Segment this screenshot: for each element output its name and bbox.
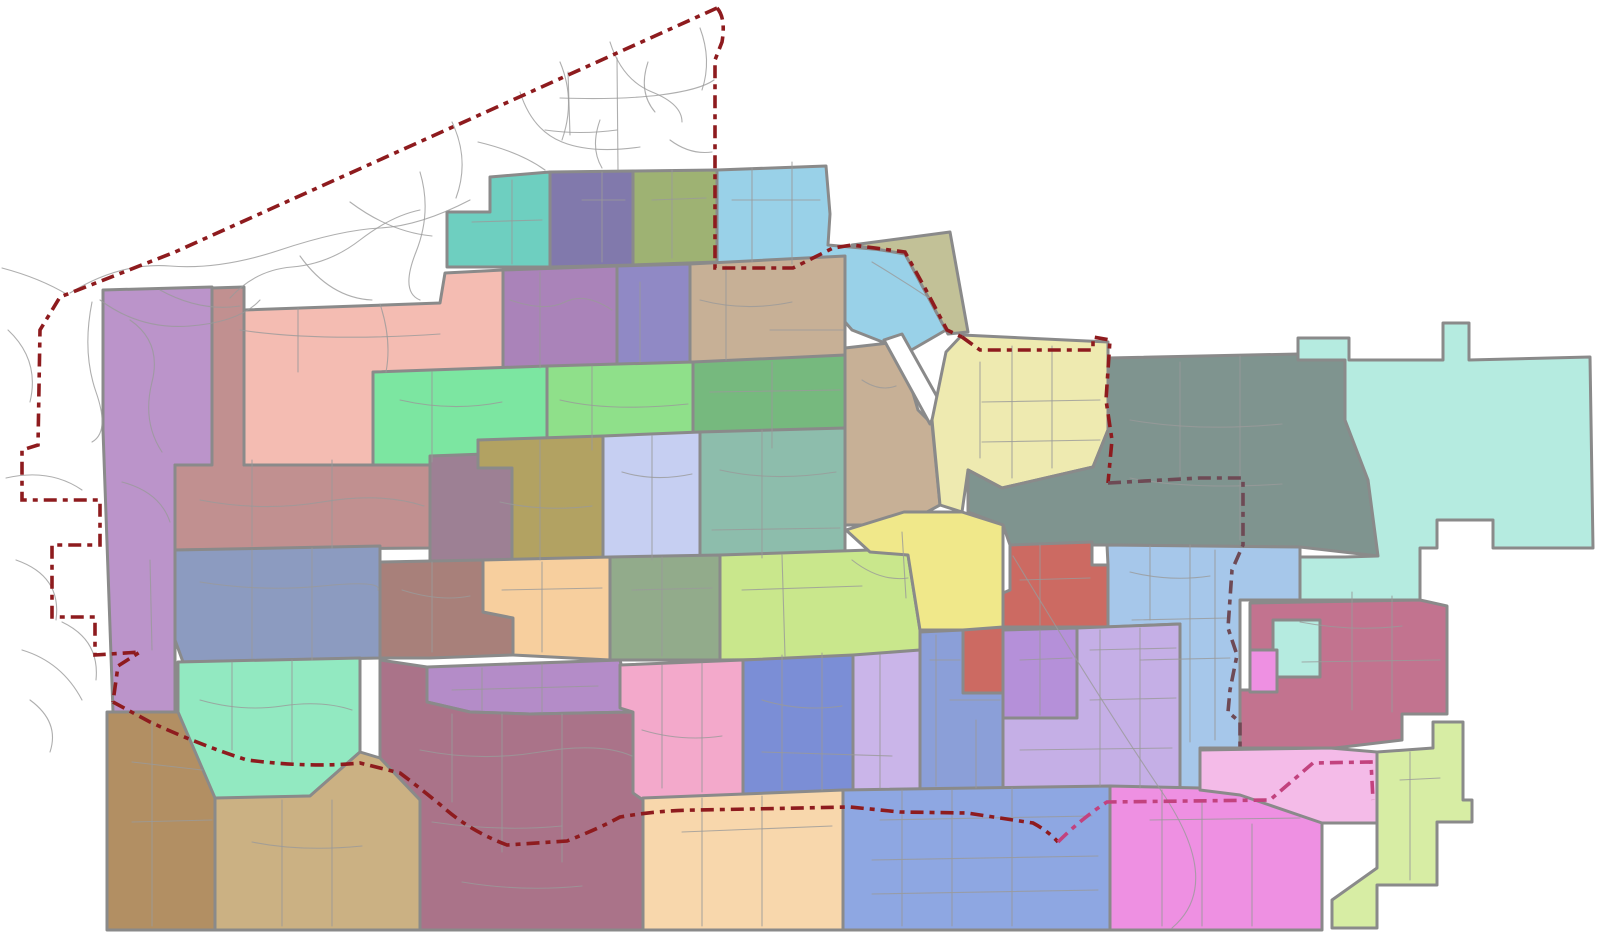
map-viewport: [0, 0, 1618, 951]
region-tan-central[interactable]: [690, 256, 845, 362]
region-slate-purple-north[interactable]: [550, 171, 633, 267]
region-pink-notch[interactable]: [1250, 650, 1277, 692]
map-canvas[interactable]: [0, 0, 1618, 951]
region-slate-blue-west[interactable]: [175, 546, 380, 662]
region-pink-south[interactable]: [620, 660, 743, 800]
region-sage-green-south[interactable]: [610, 555, 720, 660]
region-purple-south[interactable]: [427, 660, 633, 714]
region-coral-arm[interactable]: [963, 627, 1003, 693]
region-purple-blue-central[interactable]: [617, 264, 690, 368]
region-blue-purple-south[interactable]: [743, 655, 853, 795]
region-yellow-green-mid[interactable]: [720, 550, 920, 660]
region-lavender-west[interactable]: [853, 650, 920, 790]
region-mauve-central[interactable]: [503, 266, 617, 370]
region-cyan-arm[interactable]: [1273, 620, 1320, 677]
region-moss-north[interactable]: [633, 170, 717, 265]
region-coral[interactable]: [1003, 542, 1108, 627]
